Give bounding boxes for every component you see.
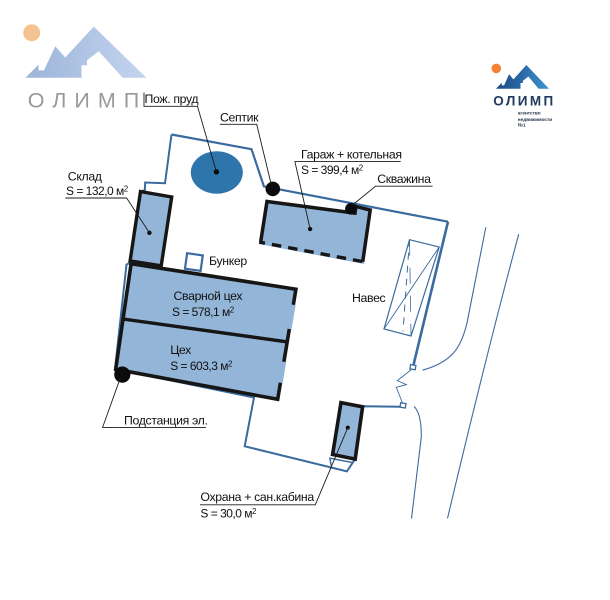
svg-text:Пож. пруд: Пож. пруд [145,92,199,106]
svg-text:Навес: Навес [352,291,386,305]
svg-text:S = 578,1 м2: S = 578,1 м2 [172,305,235,319]
svg-text:Септик: Септик [220,110,259,124]
svg-text:Подстанция эл.: Подстанция эл. [124,414,208,428]
svg-text:S = 30,0 м2: S = 30,0 м2 [200,507,257,521]
svg-text:недвижимости: недвижимости [518,117,552,122]
svg-text:№1: №1 [518,122,526,127]
svg-text:ОЛИМП: ОЛИМП [493,93,555,108]
svg-text:агентство: агентство [518,111,541,116]
svg-text:Сварной цех: Сварной цех [174,289,244,303]
svg-text:S = 603,3 м2: S = 603,3 м2 [170,359,233,373]
svg-text:Гараж + котельная: Гараж + котельная [301,148,402,162]
svg-text:Цех: Цех [170,343,192,357]
svg-text:Скважина: Скважина [377,172,431,186]
svg-text:Склад: Склад [68,169,102,183]
svg-text:Охрана + сан.кабина: Охрана + сан.кабина [200,490,314,504]
svg-text:ОЛИМП: ОЛИМП [28,89,147,113]
svg-text:Бункер: Бункер [209,254,247,268]
svg-text:S = 399,4 м2: S = 399,4 м2 [301,163,364,177]
svg-text:S = 132,0 м2: S = 132,0 м2 [66,184,129,198]
